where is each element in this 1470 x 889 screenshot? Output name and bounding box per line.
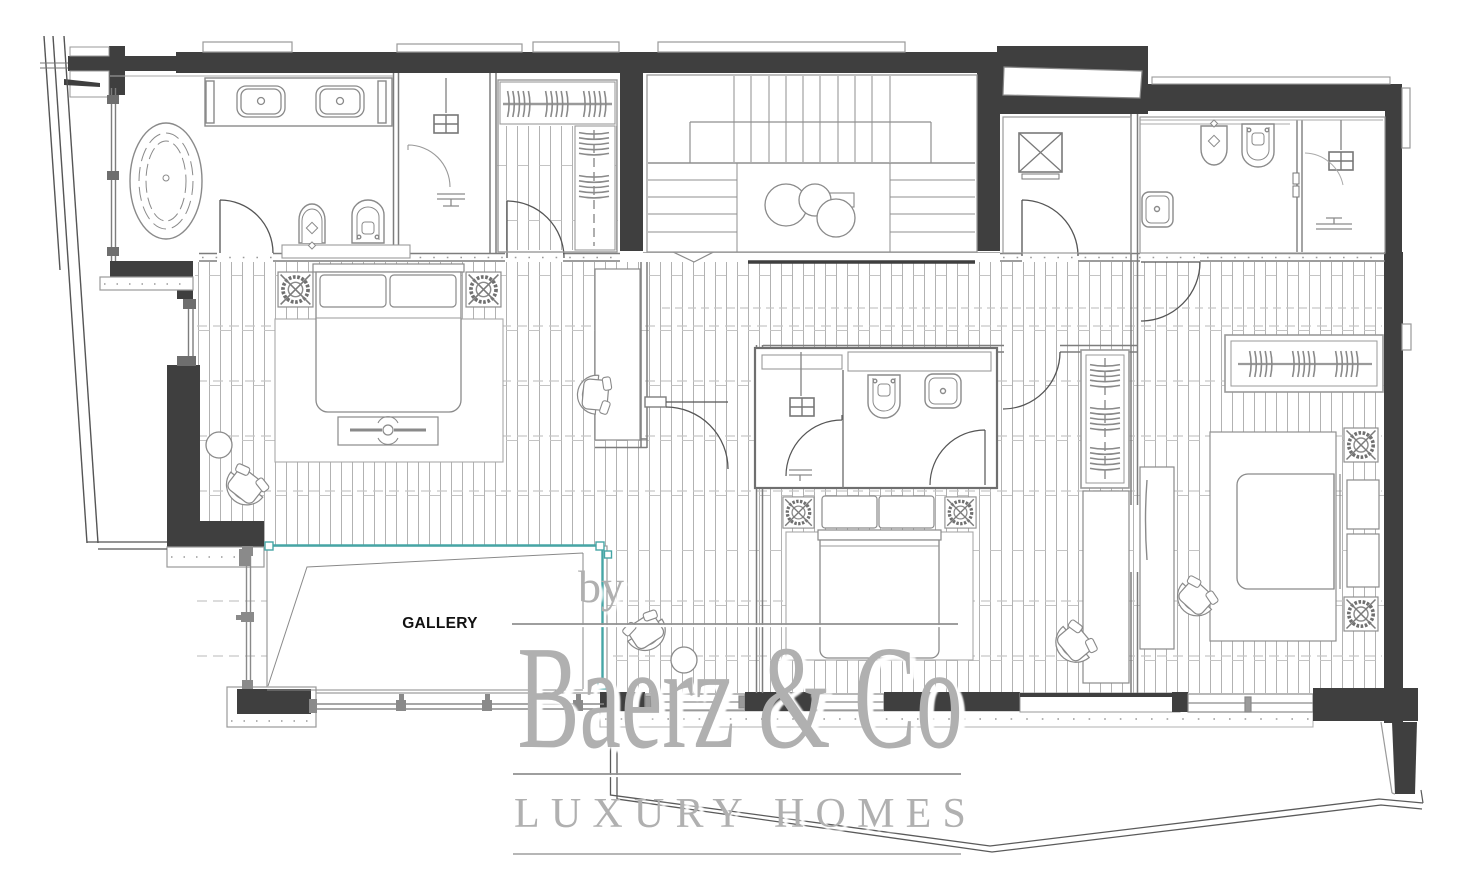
svg-text:LUXURY HOMES: LUXURY HOMES xyxy=(514,791,977,837)
svg-text:Baerz & Co: Baerz & Co xyxy=(517,615,962,779)
svg-text:by: by xyxy=(578,561,624,612)
svg-text:GALLERY: GALLERY xyxy=(402,615,478,632)
